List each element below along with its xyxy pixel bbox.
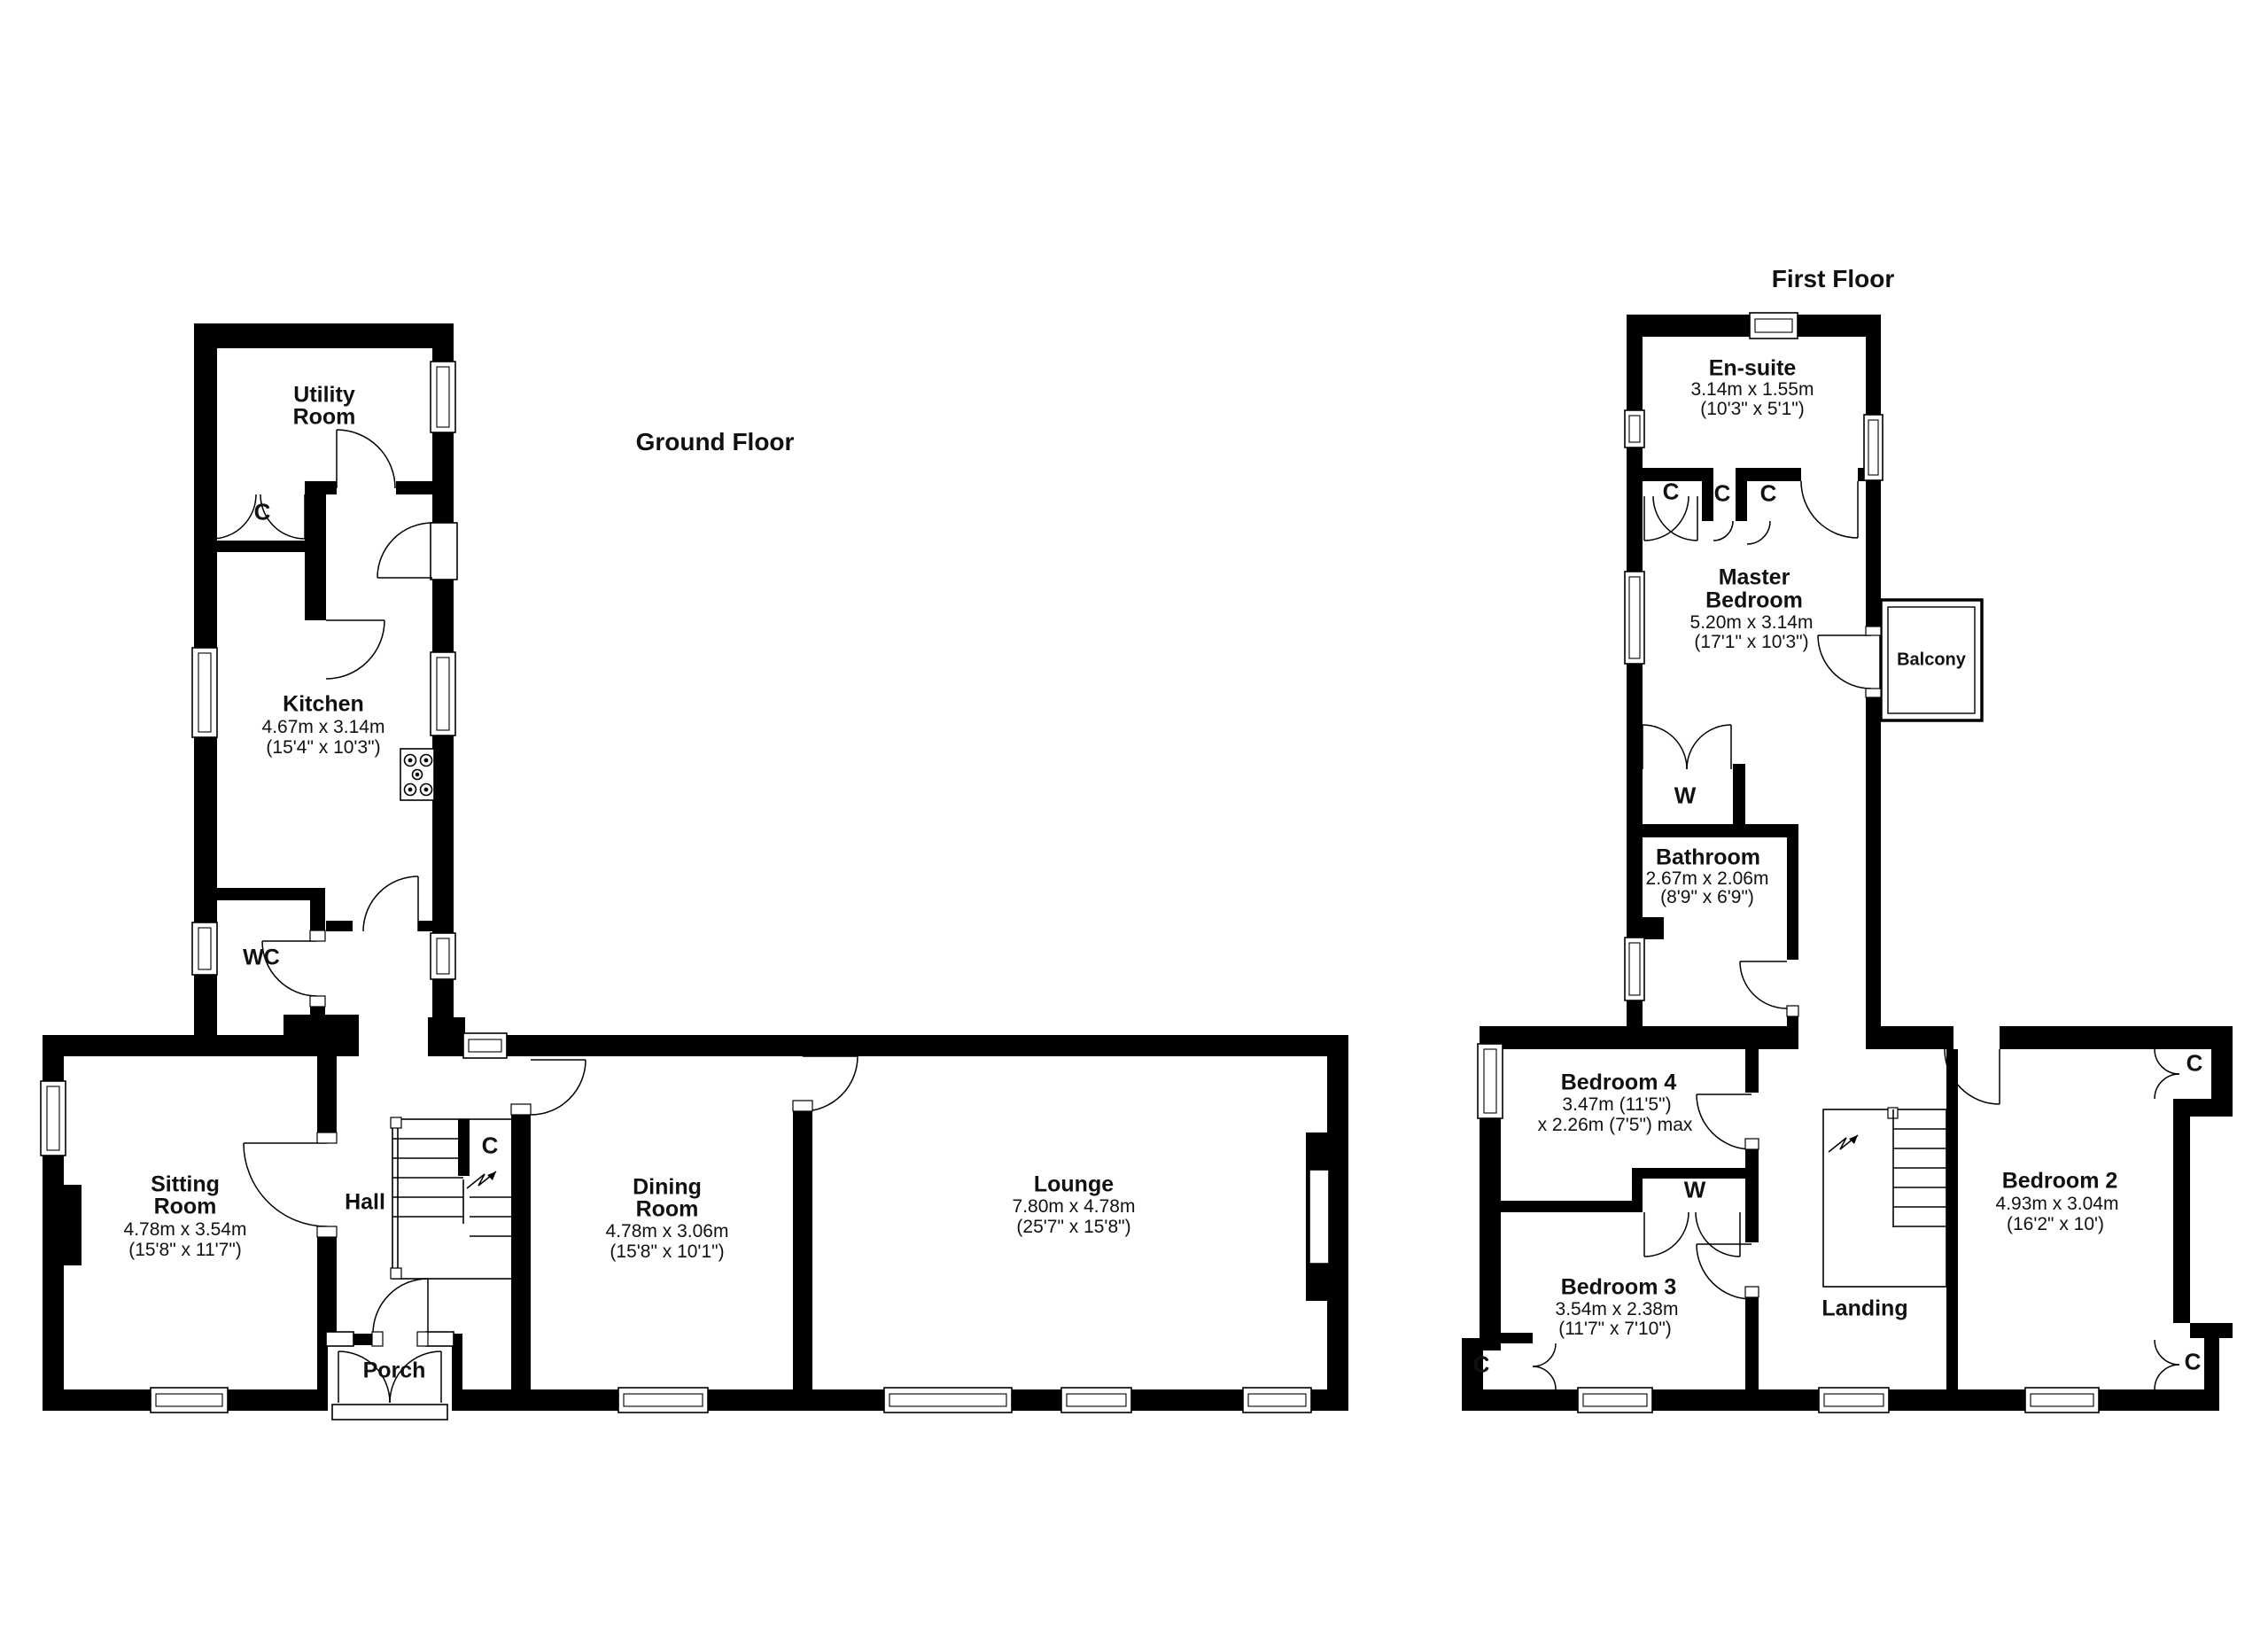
- ensuite-dim-metric: 3.14m x 1.55m: [1691, 379, 1814, 401]
- lounge-dim-metric: 7.80m x 4.78m: [1013, 1196, 1136, 1218]
- cupboard2-marker: C: [1714, 480, 1731, 508]
- balcony-label: Balcony: [1897, 650, 1966, 671]
- bedroom2-label: Bedroom 2: [2002, 1169, 2118, 1195]
- sitting-dim-metric: 4.78m x 3.54m: [124, 1219, 247, 1241]
- bed3-cupboard-marker: C: [1473, 1351, 1490, 1379]
- bedroom4-label: Bedroom 4: [1561, 1070, 1677, 1096]
- kitchen-dim-metric: 4.67m x 3.14m: [262, 717, 385, 738]
- porch-label: Porch: [363, 1358, 426, 1384]
- bed3-wardrobe-marker: W: [1684, 1177, 1706, 1204]
- ensuite-dim-imperial: (10'3" x 5'1"): [1700, 399, 1804, 420]
- dining-dim-metric: 4.78m x 3.06m: [606, 1221, 729, 1242]
- sitting-room-label2: Room: [154, 1195, 217, 1220]
- floorplan-page: Ground Floor Utility Room C Kitchen 4.67…: [0, 0, 2268, 1650]
- kitchen-dim-imperial: (15'4" x 10'3"): [266, 737, 380, 759]
- first-floor-title: First Floor: [1772, 265, 1894, 293]
- utility-cupboard-marker: C: [254, 499, 271, 526]
- first-floor-plan: [1462, 313, 2233, 1413]
- bedroom4-dim-metric: 3.47m (11'5"): [1562, 1094, 1671, 1116]
- lounge-dim-imperial: (25'7" x 15'8"): [1016, 1217, 1130, 1238]
- utility-room-label2: Room: [293, 405, 356, 431]
- bedroom2-dim-metric: 4.93m x 3.04m: [1996, 1194, 2119, 1215]
- master-bedroom-label: Master: [1719, 565, 1790, 591]
- bedroom3-dim-imperial: (11'7" x 7'10"): [1558, 1319, 1672, 1340]
- bedroom3-dim-metric: 3.54m x 2.38m: [1556, 1299, 1679, 1320]
- bedroom4-dim-imperial: x 2.26m (7'5") max: [1538, 1115, 1693, 1136]
- kitchen-hob-icon: [400, 749, 434, 800]
- hall-label: Hall: [345, 1190, 385, 1216]
- bedroom3-label: Bedroom 3: [1561, 1275, 1677, 1301]
- dining-room-label2: Room: [636, 1197, 699, 1223]
- dining-dim-imperial: (15'8" x 10'1"): [610, 1241, 724, 1263]
- ensuite-label: En-suite: [1709, 356, 1797, 382]
- understairs-cupboard-marker: C: [482, 1132, 499, 1160]
- wc-label: WC: [243, 946, 280, 971]
- bed2-cupboard-top-marker: C: [2186, 1050, 2203, 1078]
- bathroom-dim-imperial: (8'9" x 6'9"): [1660, 887, 1754, 908]
- cupboard3-marker: C: [1760, 480, 1777, 508]
- porch-threshold: [332, 1405, 447, 1420]
- lounge-label: Lounge: [1034, 1172, 1114, 1198]
- master-dim-metric: 5.20m x 3.14m: [1690, 612, 1814, 634]
- first-floor-stairs: [1823, 1108, 1946, 1287]
- landing-label: Landing: [1821, 1296, 1907, 1322]
- bed2-cupboard-bottom-marker: C: [2185, 1349, 2202, 1376]
- lounge-fireplace: [1306, 1132, 1329, 1301]
- master-wardrobe-marker: W: [1674, 782, 1697, 810]
- master-dim-imperial: (17'1" x 10'3"): [1694, 632, 1808, 653]
- bedroom2-dim-imperial: (16'2" x 10'): [2007, 1214, 2104, 1235]
- cupboard1-marker: C: [1663, 479, 1680, 506]
- sitting-dim-imperial: (15'8" x 11'7"): [128, 1240, 242, 1261]
- bathroom-label: Bathroom: [1656, 845, 1760, 871]
- ground-floor-title: Ground Floor: [636, 428, 795, 456]
- floorplan-drawing: [0, 0, 2268, 1650]
- master-bedroom-label2: Bedroom: [1705, 588, 1803, 614]
- kitchen-label: Kitchen: [283, 692, 364, 718]
